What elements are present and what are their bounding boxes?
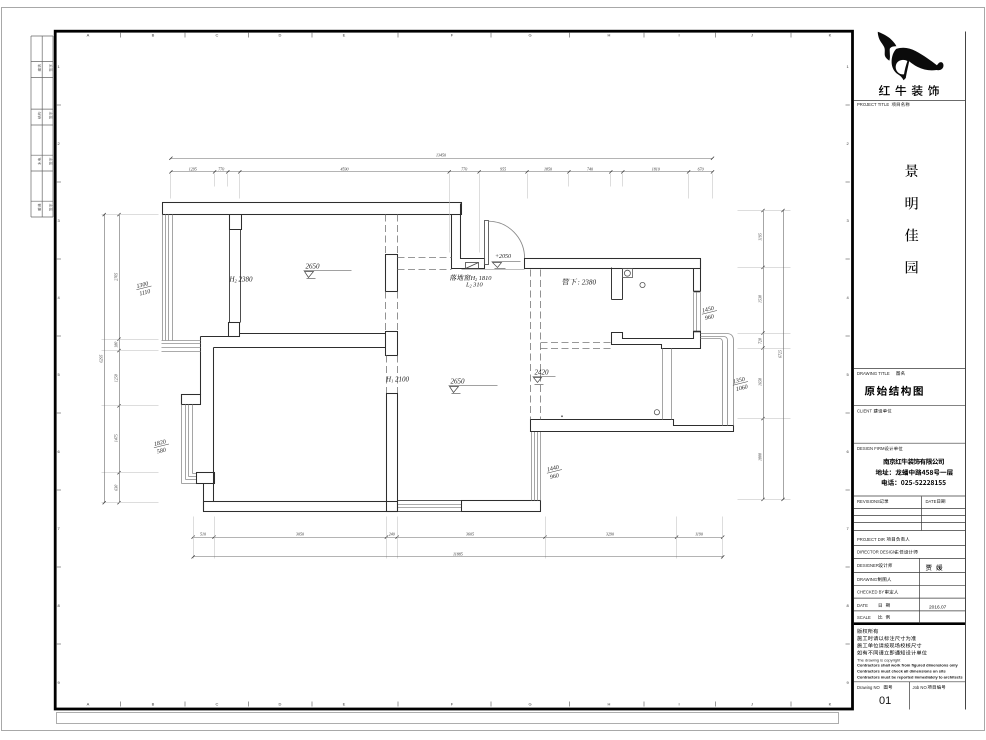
svg-text:E: E bbox=[343, 702, 346, 707]
svg-text:I: I bbox=[678, 702, 679, 707]
svg-text:670: 670 bbox=[698, 166, 704, 171]
svg-text:1295: 1295 bbox=[189, 166, 197, 171]
svg-text:Contractors shall work from fi: Contractors shall work from figured dime… bbox=[857, 663, 958, 668]
svg-text:3290: 3290 bbox=[606, 532, 614, 537]
svg-text:510: 510 bbox=[200, 532, 206, 537]
svg-text:6295: 6295 bbox=[99, 355, 104, 363]
svg-text:SCALE: SCALE bbox=[857, 615, 871, 620]
svg-text:770: 770 bbox=[461, 166, 467, 171]
svg-text:G: G bbox=[528, 702, 531, 707]
svg-text:2420: 2420 bbox=[535, 369, 550, 377]
svg-text:770: 770 bbox=[218, 166, 224, 171]
svg-text:D: D bbox=[279, 33, 282, 38]
svg-text:4590: 4590 bbox=[341, 166, 349, 171]
svg-text:H: H bbox=[608, 33, 611, 38]
svg-text:DATE: DATE bbox=[857, 603, 868, 608]
svg-text:K: K bbox=[829, 33, 832, 38]
svg-text:C: C bbox=[216, 33, 219, 38]
svg-text:L2 310: L2 310 bbox=[465, 282, 484, 289]
svg-text:J: J bbox=[751, 702, 753, 707]
svg-text:1850: 1850 bbox=[544, 166, 552, 171]
svg-text:1250: 1250 bbox=[114, 374, 119, 382]
svg-text:D: D bbox=[279, 702, 282, 707]
svg-text:E: E bbox=[343, 33, 346, 38]
svg-text:240: 240 bbox=[389, 532, 395, 537]
svg-text:1475: 1475 bbox=[114, 434, 119, 442]
svg-text:B: B bbox=[152, 33, 155, 38]
svg-text:K: K bbox=[829, 702, 832, 707]
svg-text:PROJECT DIR: PROJECT DIR bbox=[857, 537, 885, 542]
svg-text:A: A bbox=[87, 702, 90, 707]
svg-text:1195: 1195 bbox=[758, 233, 763, 241]
svg-text:740: 740 bbox=[587, 166, 593, 171]
svg-text:Drawing NO: Drawing NO bbox=[857, 685, 881, 690]
svg-text:3050: 3050 bbox=[296, 532, 304, 537]
svg-text:630: 630 bbox=[114, 485, 119, 491]
svg-text:REVISIONS: REVISIONS bbox=[857, 499, 880, 504]
svg-text:2650: 2650 bbox=[451, 378, 466, 386]
svg-text:DIRECTOR DESIGN: DIRECTOR DESIGN bbox=[857, 550, 896, 555]
svg-text:CLIENT: CLIENT bbox=[857, 409, 872, 414]
svg-text:1810: 1810 bbox=[652, 166, 660, 171]
svg-text:1190: 1190 bbox=[695, 532, 703, 537]
svg-text:720: 720 bbox=[758, 338, 763, 344]
svg-text:A: A bbox=[87, 33, 90, 38]
svg-text:13450: 13450 bbox=[436, 153, 446, 158]
svg-text:DRAWING: DRAWING bbox=[857, 577, 877, 582]
svg-text:DRAWING TITLE: DRAWING TITLE bbox=[857, 371, 890, 376]
svg-text:2705: 2705 bbox=[114, 273, 119, 281]
svg-text:The drawing is copyright: The drawing is copyright bbox=[857, 657, 901, 662]
svg-text:DESIGN FIRM: DESIGN FIRM bbox=[857, 446, 885, 451]
svg-text:+2050: +2050 bbox=[495, 254, 511, 260]
svg-text:2016.07: 2016.07 bbox=[929, 604, 947, 610]
svg-text:I: I bbox=[678, 33, 679, 38]
svg-text:2650: 2650 bbox=[306, 263, 321, 271]
svg-text:1800: 1800 bbox=[758, 453, 763, 461]
svg-text:955: 955 bbox=[500, 166, 506, 171]
svg-text:J: J bbox=[751, 33, 753, 38]
svg-text:DESIGNER: DESIGNER bbox=[857, 563, 879, 568]
svg-text:6725: 6725 bbox=[778, 350, 783, 358]
svg-text:CHECKED BY: CHECKED BY bbox=[857, 590, 884, 595]
svg-text:H: H bbox=[608, 702, 611, 707]
svg-text:Job NO: Job NO bbox=[913, 685, 928, 690]
svg-text:G: G bbox=[528, 33, 531, 38]
svg-text:: 2380: : 2380 bbox=[578, 279, 597, 287]
svg-text:180: 180 bbox=[114, 342, 119, 348]
svg-text:H1 2100: H1 2100 bbox=[385, 376, 409, 384]
svg-text:C: C bbox=[216, 702, 219, 707]
svg-text:11885: 11885 bbox=[453, 551, 463, 556]
svg-text:3605: 3605 bbox=[466, 532, 474, 537]
svg-text:Contractors must be reported i: Contractors must be reported immediately… bbox=[857, 675, 963, 680]
svg-text:DATE: DATE bbox=[926, 499, 937, 504]
svg-text:H2 2380: H2 2380 bbox=[229, 276, 253, 284]
svg-text:Contractors must check all dim: Contractors must check all dimensions on… bbox=[857, 669, 946, 674]
svg-text:01: 01 bbox=[879, 695, 891, 707]
svg-text:B: B bbox=[152, 702, 155, 707]
svg-text:1530: 1530 bbox=[758, 295, 763, 303]
svg-text:PROJECT TITLE: PROJECT TITLE bbox=[857, 102, 889, 107]
svg-text:1650: 1650 bbox=[758, 378, 763, 386]
